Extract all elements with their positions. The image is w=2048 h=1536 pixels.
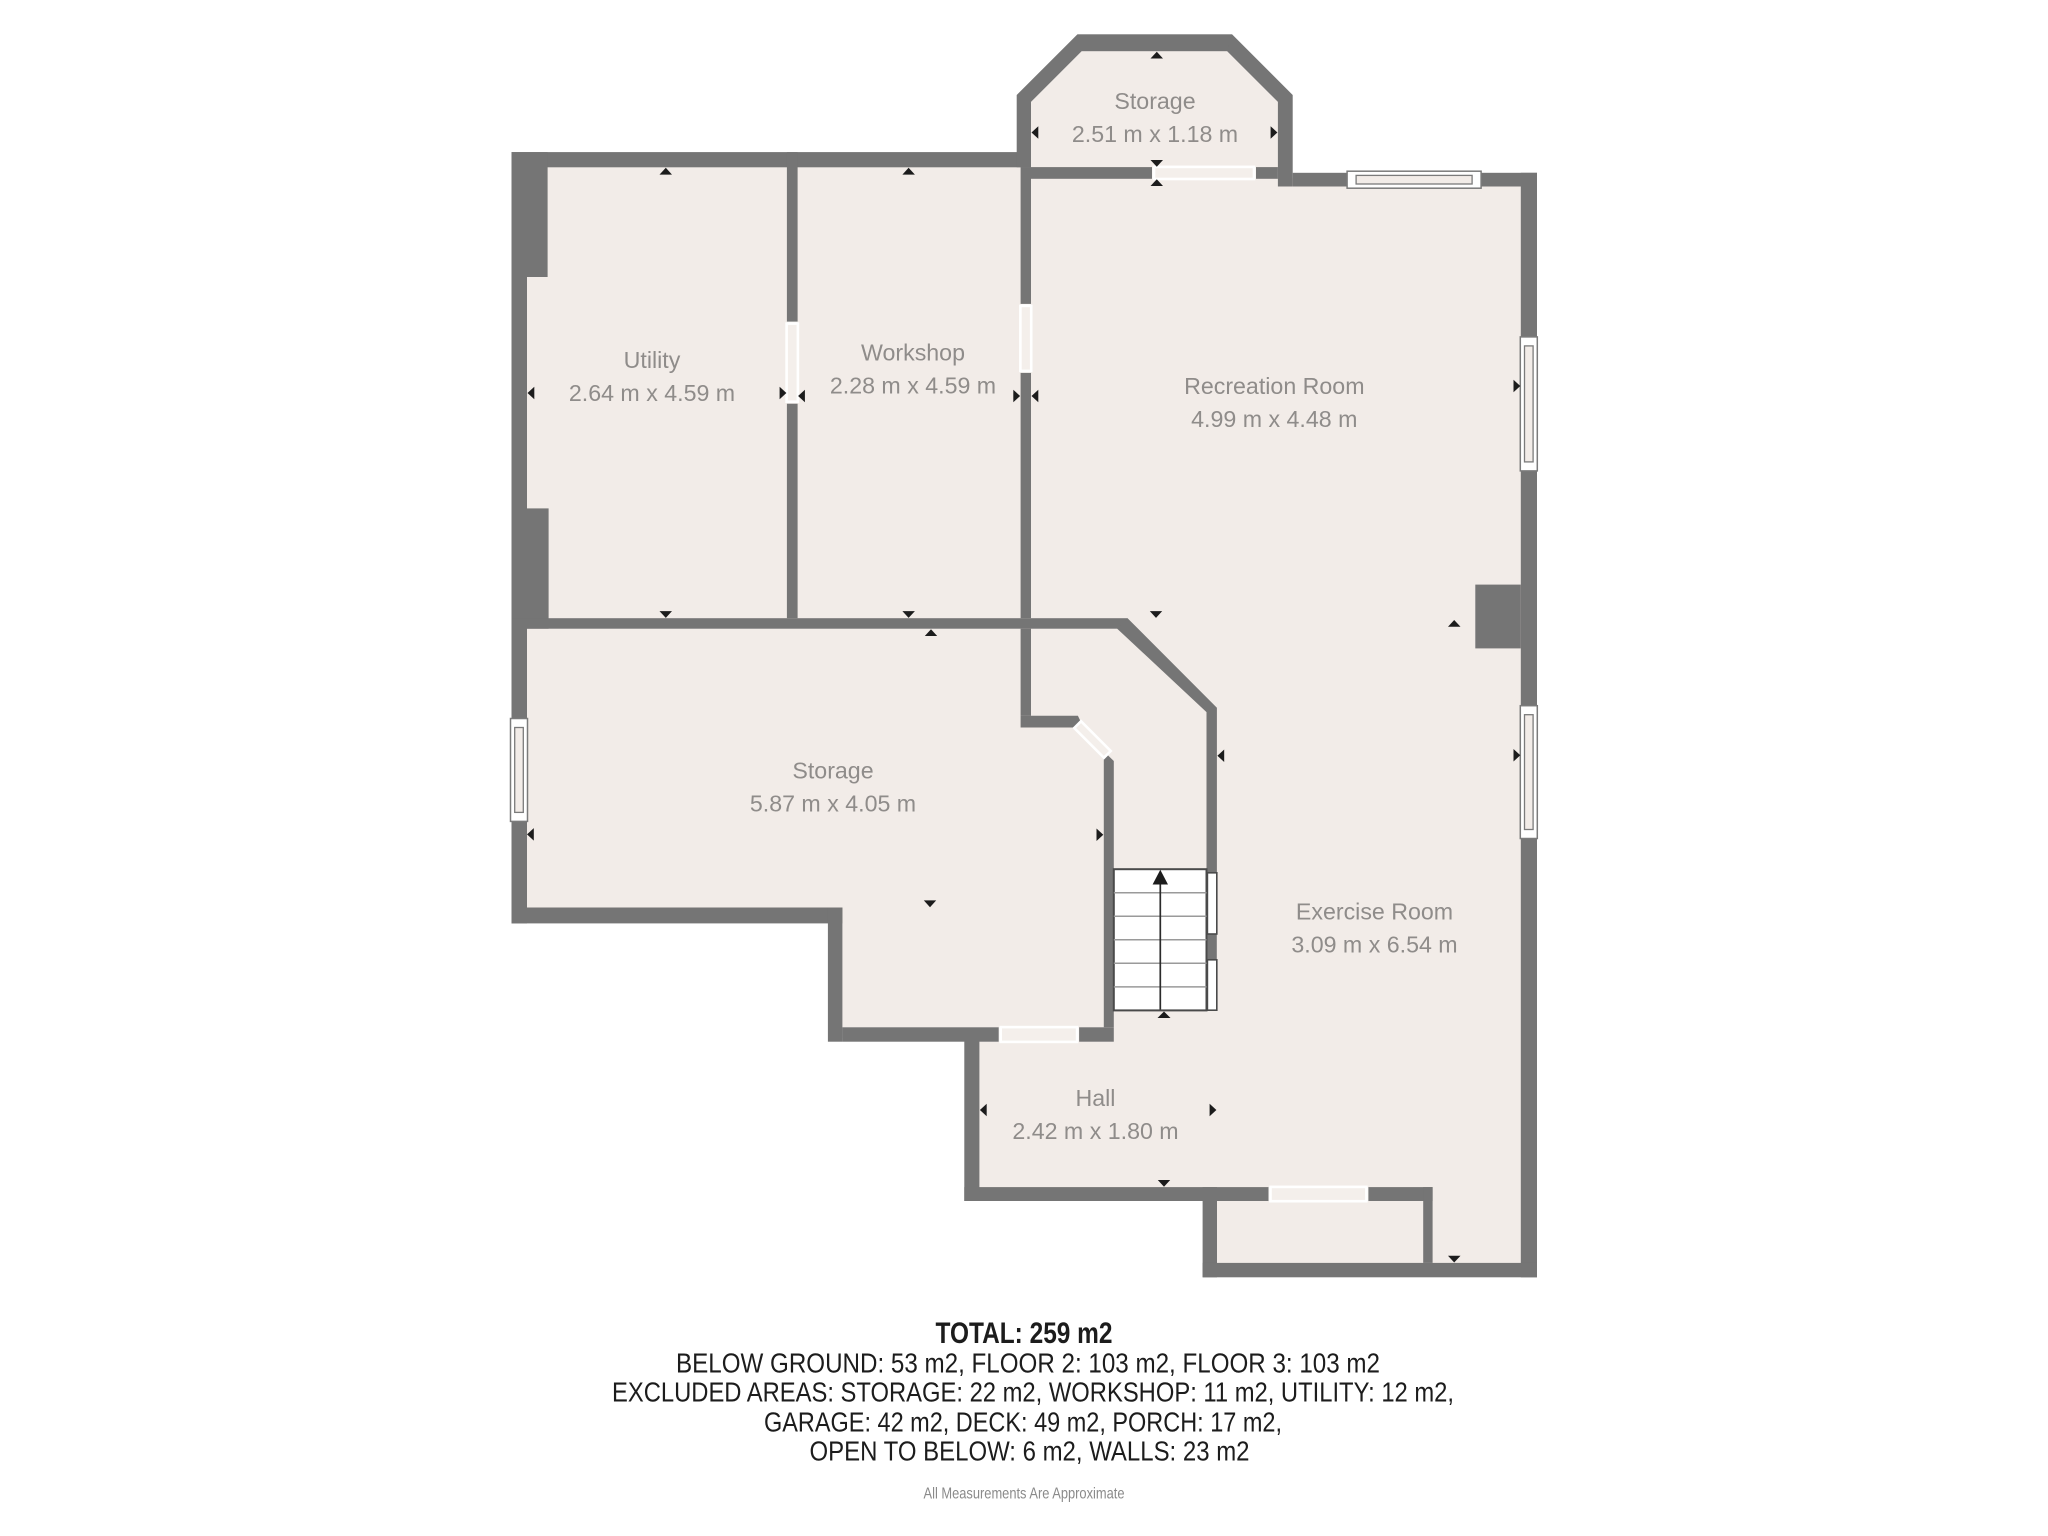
svg-text:Recreation Room: Recreation Room <box>1184 373 1364 399</box>
svg-text:OPEN TO BELOW: 6 m2, WALLS: 23: OPEN TO BELOW: 6 m2, WALLS: 23 m2 <box>810 1436 1250 1467</box>
svg-text:TOTAL: 259 m2: TOTAL: 259 m2 <box>936 1317 1113 1350</box>
svg-text:2.42 m x 1.80 m: 2.42 m x 1.80 m <box>1012 1118 1178 1144</box>
svg-text:EXCLUDED AREAS: STORAGE: 22 m2: EXCLUDED AREAS: STORAGE: 22 m2, WORKSHOP… <box>612 1377 1454 1408</box>
svg-text:2.51 m x 1.18 m: 2.51 m x 1.18 m <box>1072 121 1238 147</box>
svg-text:Storage: Storage <box>792 758 873 784</box>
svg-text:All Measurements Are Approxima: All Measurements Are Approximate <box>924 1485 1125 1502</box>
svg-text:3.09 m x 6.54 m: 3.09 m x 6.54 m <box>1291 932 1457 958</box>
svg-text:2.64 m x 4.59 m: 2.64 m x 4.59 m <box>569 380 735 406</box>
svg-text:GARAGE: 42 m2, DECK: 49 m2, PO: GARAGE: 42 m2, DECK: 49 m2, PORCH: 17 m2… <box>764 1406 1282 1437</box>
svg-text:5.87 m x 4.05 m: 5.87 m x 4.05 m <box>750 791 916 817</box>
svg-text:Hall: Hall <box>1076 1085 1116 1111</box>
svg-text:4.99 m x 4.48 m: 4.99 m x 4.48 m <box>1191 406 1357 432</box>
svg-text:Workshop: Workshop <box>861 340 965 366</box>
svg-text:Storage: Storage <box>1114 88 1195 114</box>
svg-text:Exercise Room: Exercise Room <box>1296 899 1453 925</box>
svg-text:2.28 m x 4.59 m: 2.28 m x 4.59 m <box>830 373 996 399</box>
svg-text:BELOW GROUND: 53 m2, FLOOR 2:: BELOW GROUND: 53 m2, FLOOR 2: 103 m2, FL… <box>676 1347 1380 1378</box>
svg-text:Utility: Utility <box>624 347 681 373</box>
